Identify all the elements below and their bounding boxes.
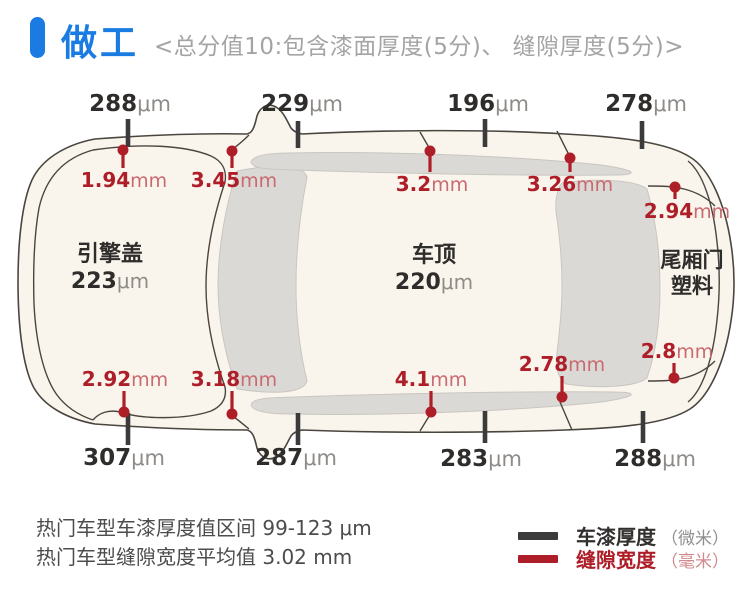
gap-width-label: 2.8mm [641, 341, 713, 363]
gap-marker-dot [227, 409, 238, 420]
paint-value: 287 [255, 445, 303, 471]
gap-width-label: 3.45mm [191, 170, 277, 192]
gap-width-label: 3.2mm [396, 174, 468, 196]
legend-unit: （毫米） [656, 547, 729, 572]
panel-paint-value: 220 [395, 270, 441, 295]
gap-unit: mm [430, 369, 467, 391]
legend-label: 缝隙宽度 [576, 544, 656, 573]
paint-value: 196 [447, 91, 495, 117]
gap-marker-dot [426, 407, 437, 418]
gap-marker-dot [557, 392, 568, 403]
paint-value: 229 [261, 91, 309, 117]
paint-unit: μm [303, 446, 337, 470]
gap-marker-dot [670, 182, 681, 193]
gap-width-label: 2.92mm [82, 369, 168, 391]
paint-value: 283 [440, 446, 488, 472]
legend-gap-width: 缝隙宽度 （毫米） [518, 544, 729, 573]
paint-thickness-label: 196μm [447, 92, 529, 116]
gap-width-label: 3.26mm [527, 174, 613, 196]
panel-paint-unit: μm [117, 269, 149, 293]
gap-width-label: 2.94mm [644, 201, 730, 223]
gap-unit: mm [693, 201, 730, 223]
panel-label-hood: 引擎盖 223μm [71, 242, 149, 295]
gap-value: 3.26 [527, 172, 576, 196]
paint-value: 288 [614, 446, 662, 472]
gap-value: 4.1 [395, 367, 430, 391]
panel-value: 223μm [71, 268, 149, 295]
footnote-gap-average: 热门车型缝隙宽度平均值 3.02 mm [36, 541, 352, 570]
gap-value: 3.2 [396, 172, 431, 196]
gap-unit: mm [568, 354, 605, 376]
gap-unit: mm [576, 174, 613, 196]
gap-width-label: 4.1mm [395, 369, 467, 391]
footnote-paint-range: 热门车型车漆厚度值区间 99-123 μm [36, 512, 372, 541]
paint-thickness-swatch-icon [518, 532, 558, 540]
paint-value: 278 [605, 91, 653, 117]
gap-value: 1.94 [81, 168, 130, 192]
paint-unit: μm [137, 92, 171, 116]
gap-unit: mm [240, 369, 277, 391]
panel-paint-unit: μm [441, 270, 473, 294]
panel-name-line2: 塑料 [661, 273, 724, 299]
paint-thickness-label: 283μm [440, 447, 522, 471]
gap-unit: mm [676, 341, 713, 363]
panel-name: 引擎盖 [71, 242, 149, 268]
paint-thickness-label: 229μm [261, 92, 343, 116]
gap-width-label: 3.18mm [191, 369, 277, 391]
gap-value: 2.78 [519, 352, 568, 376]
gap-value: 2.8 [641, 339, 676, 363]
gap-value: 2.94 [644, 199, 693, 223]
paint-unit: μm [662, 447, 696, 471]
gap-unit: mm [131, 369, 168, 391]
gap-value: 3.45 [191, 168, 240, 192]
panel-name: 尾厢门 [661, 247, 724, 273]
paint-value: 307 [83, 445, 131, 471]
panel-value: 220μm [395, 269, 473, 296]
gap-unit: mm [130, 170, 167, 192]
paint-unit: μm [495, 92, 529, 116]
paint-unit: μm [309, 92, 343, 116]
paint-unit: μm [131, 446, 165, 470]
gap-unit: mm [240, 170, 277, 192]
paint-thickness-label: 288μm [89, 92, 171, 116]
gap-marker-dot [227, 146, 238, 157]
paint-unit: μm [653, 92, 687, 116]
gap-marker-dot [118, 145, 129, 156]
gap-marker-dot [425, 146, 436, 157]
panel-label-roof: 车顶 220μm [395, 243, 473, 296]
paint-thickness-label: 307μm [83, 446, 165, 470]
paint-unit: μm [488, 447, 522, 471]
paint-thickness-label: 278μm [605, 92, 687, 116]
panel-paint-value: 223 [71, 269, 117, 294]
gap-value: 3.18 [191, 367, 240, 391]
paint-thickness-label: 288μm [614, 447, 696, 471]
build-quality-infographic: 做工 <总分值10:包含漆面厚度(5分)、 缝隙厚度(5分)> [0, 0, 750, 592]
gap-unit: mm [431, 174, 468, 196]
gap-value: 2.92 [82, 367, 131, 391]
panel-name: 车顶 [395, 243, 473, 269]
windshield [218, 166, 307, 392]
paint-thickness-label: 287μm [255, 446, 337, 470]
gap-width-label: 2.78mm [519, 354, 605, 376]
gap-marker-dot [119, 407, 130, 418]
gap-width-label: 1.94mm [81, 170, 167, 192]
gap-marker-dot [565, 153, 576, 164]
gap-width-swatch-icon [518, 555, 558, 563]
gap-marker-dot [669, 373, 680, 384]
car-top-view-diagram [0, 0, 750, 592]
paint-value: 288 [89, 91, 137, 117]
panel-label-tailgate: 尾厢门 塑料 [661, 247, 724, 299]
